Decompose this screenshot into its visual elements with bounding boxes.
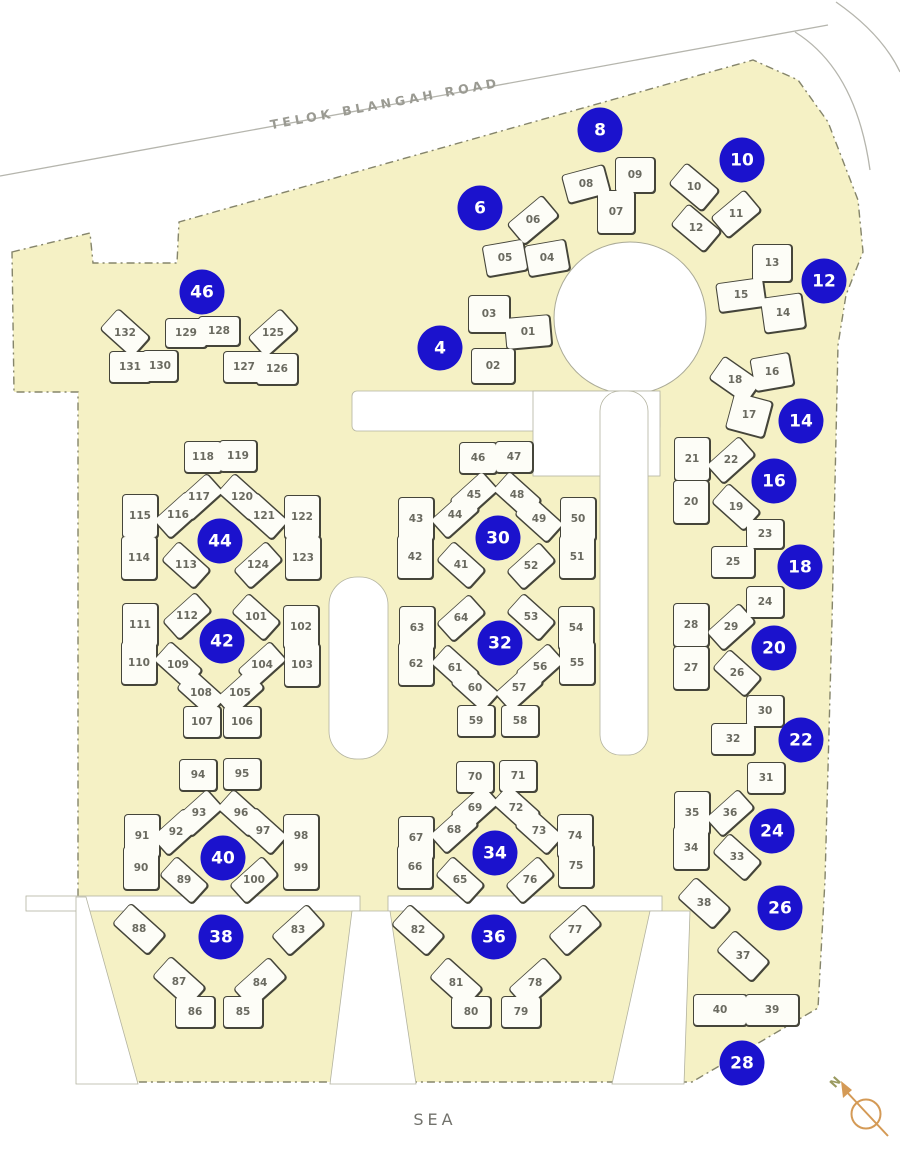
building-unit[interactable] [224,352,264,382]
block-number: 16 [762,471,786,491]
site-plan: N 01020304050607080910111213141516171819… [0,0,900,1151]
building-unit[interactable] [674,481,708,523]
building-unit[interactable] [502,706,538,736]
building-unit[interactable] [185,442,221,472]
building-unit[interactable] [674,647,708,689]
building-unit[interactable] [694,995,746,1025]
building-unit[interactable] [399,643,433,685]
building-unit[interactable] [122,642,156,684]
block-number: 6 [474,198,486,218]
block-number: 20 [762,638,786,658]
building-unit[interactable] [184,707,220,737]
block-marker[interactable]: 44 [198,519,243,564]
block-number: 44 [208,531,232,551]
sea-label: SEA [380,1110,490,1129]
building-unit[interactable] [747,520,783,548]
block-number: 24 [760,821,784,841]
block-number: 22 [789,730,813,750]
building-unit[interactable] [400,607,434,649]
building-unit[interactable] [712,547,754,577]
block-number: 12 [812,271,836,291]
building-unit[interactable] [598,191,634,233]
internal-road-strip-east [600,391,648,755]
building-unit[interactable] [180,760,216,790]
block-marker[interactable]: 36 [472,915,517,960]
block-marker[interactable]: 42 [200,619,245,664]
internal-road-strip-west [329,577,388,759]
building-unit[interactable] [122,537,156,579]
building-unit[interactable] [675,792,709,834]
building-unit[interactable] [399,498,433,540]
compass: N [827,1074,888,1136]
building-unit[interactable] [460,443,496,473]
block-number: 4 [434,338,446,358]
block-marker[interactable]: 28 [720,1041,765,1086]
block-marker[interactable]: 26 [758,886,803,931]
block-number: 40 [211,848,235,868]
building-unit[interactable] [472,349,514,383]
building-unit[interactable] [560,642,594,684]
building-unit[interactable] [224,759,260,789]
block-marker[interactable]: 4 [418,326,463,371]
building-unit[interactable] [747,587,783,617]
building-unit[interactable] [559,845,593,887]
building-unit[interactable] [505,315,551,349]
building-unit[interactable] [457,762,493,792]
building-unit[interactable] [220,441,256,471]
block-marker[interactable]: 18 [778,545,823,590]
building-unit[interactable] [747,696,783,726]
building-unit[interactable] [284,847,318,889]
block-marker[interactable]: 24 [750,809,795,854]
central-courtyard-circle [554,242,706,394]
block-number: 32 [488,633,512,653]
building-unit[interactable] [674,604,708,646]
building-unit[interactable] [458,706,494,736]
building-unit[interactable] [110,352,150,382]
block-marker[interactable]: 14 [779,399,824,444]
building-unit[interactable] [123,604,157,646]
block-number: 28 [730,1053,754,1073]
building-unit[interactable] [748,763,784,793]
block-marker[interactable]: 30 [476,516,521,561]
building-unit[interactable] [675,438,709,480]
block-marker[interactable]: 16 [752,459,797,504]
building-unit[interactable] [399,817,433,859]
block-marker[interactable]: 38 [199,915,244,960]
block-number: 8 [594,120,606,140]
block-marker[interactable]: 32 [478,621,523,666]
block-marker[interactable]: 34 [473,831,518,876]
block-number: 30 [486,528,510,548]
block-marker[interactable]: 46 [180,270,225,315]
block-number: 10 [730,150,754,170]
building-unit[interactable] [286,537,320,579]
block-marker[interactable]: 6 [458,186,503,231]
building-unit[interactable] [496,442,532,472]
building-unit[interactable] [285,496,319,538]
building-unit[interactable] [166,319,206,347]
building-unit[interactable] [753,245,791,281]
building-unit[interactable] [502,997,540,1027]
building-unit[interactable] [224,997,262,1027]
building-unit[interactable] [398,536,432,578]
block-marker[interactable]: 12 [802,259,847,304]
block-marker[interactable]: 20 [752,626,797,671]
building-unit[interactable] [469,296,509,332]
building-unit[interactable] [560,536,594,578]
building-unit[interactable] [616,158,654,192]
building-unit[interactable] [561,498,595,540]
building-unit[interactable] [746,995,798,1025]
block-number: 34 [483,843,507,863]
building-unit[interactable] [712,724,754,754]
building-unit[interactable] [123,495,157,537]
building-unit[interactable] [224,707,260,737]
block-number: 42 [210,631,234,651]
block-marker[interactable]: 8 [578,108,623,153]
compass-north-label: N [827,1074,844,1091]
block-marker[interactable]: 40 [201,836,246,881]
block-number: 18 [788,557,812,577]
block-number: 36 [482,927,506,947]
road-corner-line [836,2,900,72]
block-number: 26 [768,898,792,918]
block-number: 46 [190,282,214,302]
block-number: 14 [789,411,813,431]
building-unit[interactable] [285,644,319,686]
building-unit[interactable] [284,606,318,648]
block-marker[interactable]: 10 [720,138,765,183]
building-unit[interactable] [761,293,805,332]
block-marker[interactable]: 22 [779,718,824,763]
block-number: 38 [209,927,233,947]
